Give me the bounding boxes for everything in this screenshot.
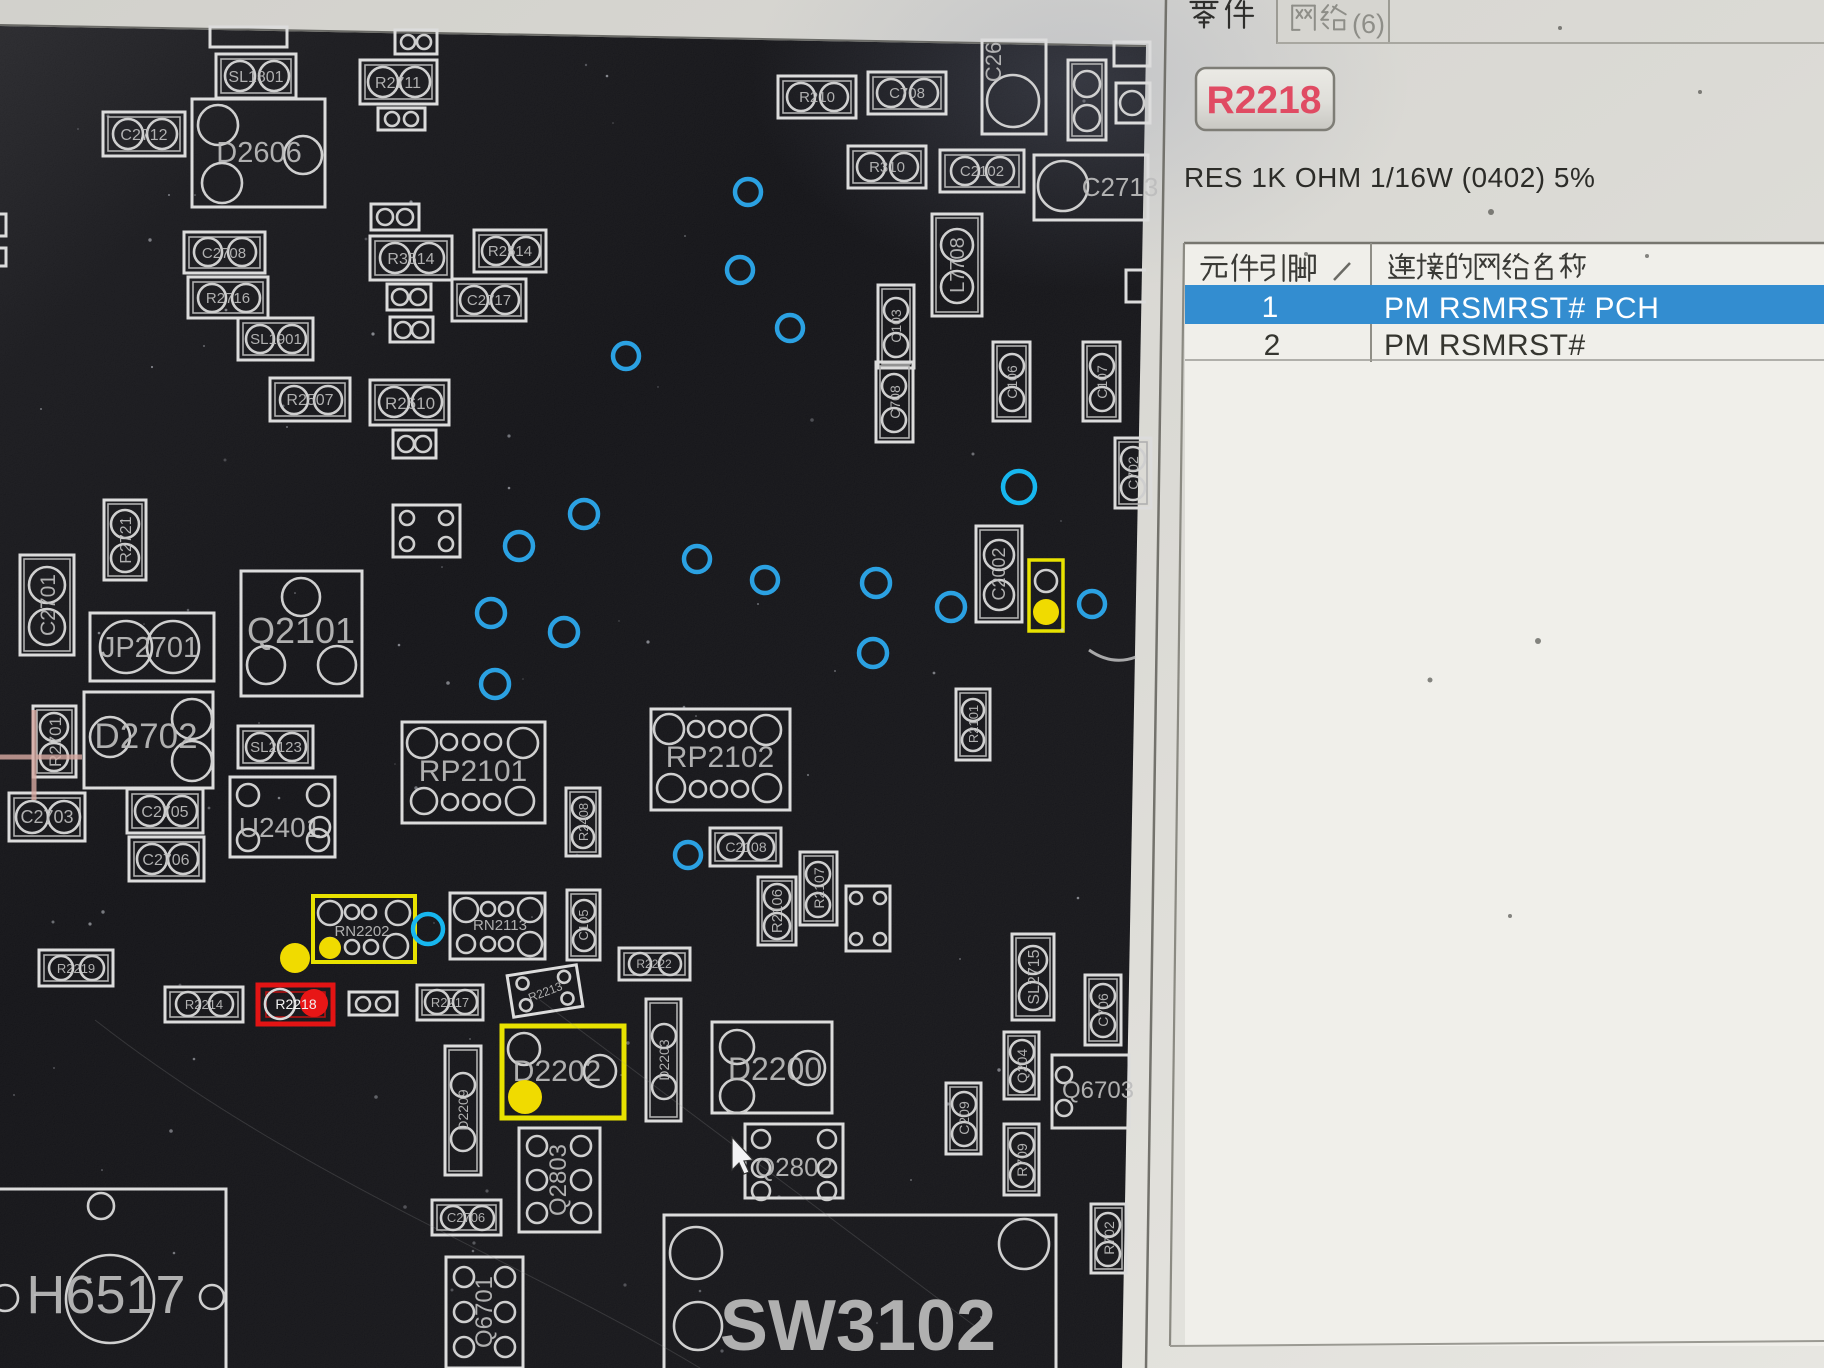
svg-text:R2716: R2716 xyxy=(206,290,250,307)
svg-text:Q6703: Q6703 xyxy=(1062,1077,1134,1104)
svg-text:Q2803: Q2803 xyxy=(545,1144,572,1216)
svg-text:PM RSMRST#: PM RSMRST# xyxy=(1384,329,1586,362)
svg-text:C2706: C2706 xyxy=(142,852,189,869)
svg-text:C708: C708 xyxy=(889,85,925,102)
svg-text:SL1901: SL1901 xyxy=(250,331,302,348)
svg-text:C2705: C2705 xyxy=(141,804,188,821)
svg-text:R2701: R2701 xyxy=(46,717,65,767)
svg-text:R2218: R2218 xyxy=(1207,79,1322,122)
svg-text:Q2101: Q2101 xyxy=(247,610,355,651)
svg-text:R3514: R3514 xyxy=(387,251,434,268)
svg-text:SL1801: SL1801 xyxy=(228,69,283,86)
svg-text:R2218: R2218 xyxy=(275,996,316,1012)
svg-text:R709: R709 xyxy=(1014,1143,1030,1177)
svg-text:R2222: R2222 xyxy=(636,957,672,971)
svg-text:R2106: R2106 xyxy=(769,889,786,933)
svg-text:Q2802: Q2802 xyxy=(755,1152,833,1182)
svg-text:C103: C103 xyxy=(888,309,904,343)
svg-text:R2711: R2711 xyxy=(375,75,421,92)
svg-text:C706: C706 xyxy=(1095,993,1111,1027)
svg-text:C107: C107 xyxy=(1094,365,1110,399)
svg-text:C2701: C2701 xyxy=(37,574,60,636)
svg-text:D2209: D2209 xyxy=(455,1089,471,1130)
svg-text:(6): (6) xyxy=(1352,9,1385,39)
svg-text:R2514: R2514 xyxy=(488,243,532,260)
svg-text:C2708: C2708 xyxy=(202,245,246,262)
svg-text:R2219: R2219 xyxy=(57,961,95,976)
svg-text:2: 2 xyxy=(1264,329,1281,362)
svg-text:R310: R310 xyxy=(869,159,905,176)
svg-text:D2200: D2200 xyxy=(728,1051,822,1087)
svg-text:R2507: R2507 xyxy=(286,392,333,409)
svg-text:SW3102: SW3102 xyxy=(720,1286,996,1366)
svg-text:PM RSMRST# PCH: PM RSMRST# PCH xyxy=(1384,292,1659,325)
svg-text:C2703: C2703 xyxy=(20,807,73,827)
svg-text:RN2113: RN2113 xyxy=(473,917,527,934)
svg-text:L7708: L7708 xyxy=(947,237,969,293)
svg-text:R2101: R2101 xyxy=(966,705,981,743)
svg-text:C105: C105 xyxy=(576,909,591,940)
svg-text:D2702: D2702 xyxy=(94,717,197,756)
svg-text:R2214: R2214 xyxy=(185,997,223,1012)
svg-text:C2712: C2712 xyxy=(120,127,167,144)
svg-text:C2713: C2713 xyxy=(1082,172,1159,202)
svg-text:1: 1 xyxy=(1262,291,1279,324)
svg-text:RES 1K OHM 1/16W (0402) 5%: RES 1K OHM 1/16W (0402) 5% xyxy=(1184,162,1595,193)
svg-text:R2408: R2408 xyxy=(576,803,591,841)
svg-text:R702: R702 xyxy=(1101,1221,1117,1255)
svg-text:C708: C708 xyxy=(887,385,903,419)
svg-text:RP2102: RP2102 xyxy=(666,741,774,774)
svg-text:C2102: C2102 xyxy=(960,163,1004,180)
svg-text:C209: C209 xyxy=(956,1101,972,1135)
svg-text:RN2202: RN2202 xyxy=(334,923,389,940)
svg-text:R210: R210 xyxy=(799,89,835,106)
svg-text:C106: C106 xyxy=(1004,365,1020,399)
svg-text:RP2101: RP2101 xyxy=(419,755,527,788)
svg-text:Q6701: Q6701 xyxy=(471,1276,498,1348)
svg-text:R2217: R2217 xyxy=(431,995,469,1010)
svg-text:D2606: D2606 xyxy=(216,137,301,169)
svg-text:C26: C26 xyxy=(981,42,1006,82)
svg-text:C2002: C2002 xyxy=(989,547,1009,600)
svg-text:Q204: Q204 xyxy=(1014,1049,1030,1083)
svg-text:H6517: H6517 xyxy=(26,1265,185,1325)
svg-text:R2721: R2721 xyxy=(118,516,135,563)
svg-text:D2203: D2203 xyxy=(656,1039,672,1080)
svg-text:R2107: R2107 xyxy=(811,867,827,908)
svg-text:C2108: C2108 xyxy=(725,839,766,855)
svg-text:C2717: C2717 xyxy=(467,292,511,309)
svg-text:R2610: R2610 xyxy=(385,394,435,413)
svg-text:JP2701: JP2701 xyxy=(101,632,199,664)
svg-text:SL2123: SL2123 xyxy=(250,739,302,756)
svg-text:C702: C702 xyxy=(1125,456,1141,490)
svg-text:C2706: C2706 xyxy=(447,1210,485,1225)
svg-text:SL2715: SL2715 xyxy=(1026,949,1043,1004)
